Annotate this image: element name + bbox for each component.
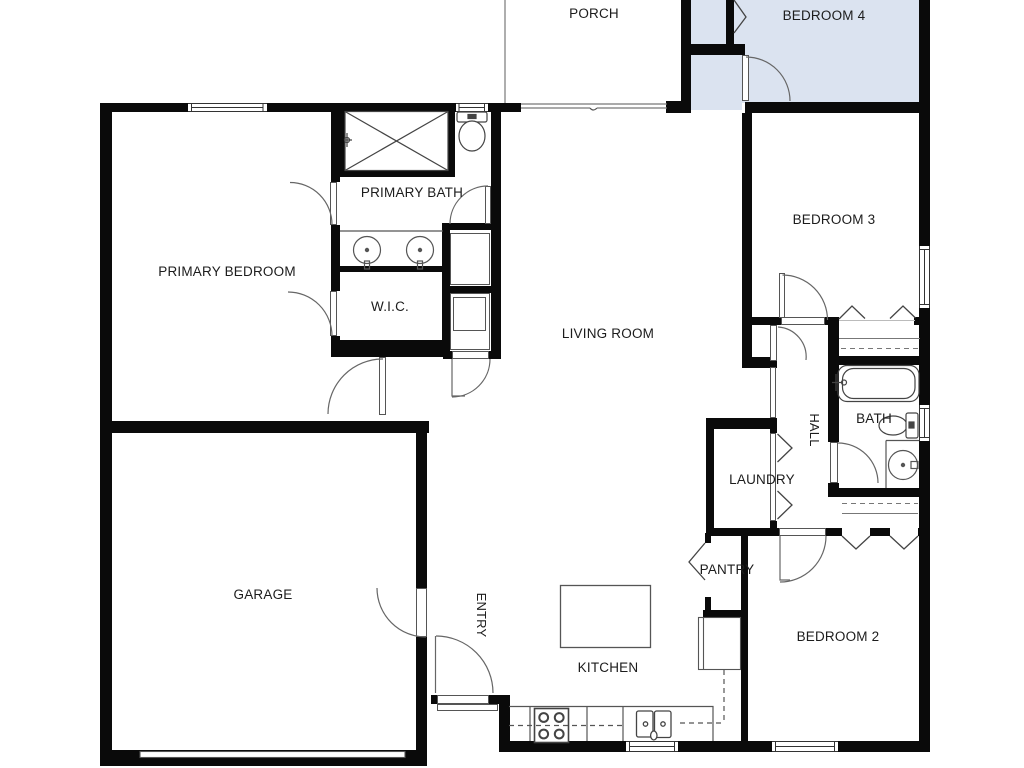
svg-text:PRIMARY BEDROOM: PRIMARY BEDROOM	[158, 264, 296, 279]
svg-text:HALL: HALL	[807, 413, 822, 446]
svg-text:PRIMARY BATH: PRIMARY BATH	[361, 185, 463, 200]
svg-text:KITCHEN: KITCHEN	[578, 660, 639, 675]
svg-text:ENTRY: ENTRY	[474, 593, 489, 638]
svg-text:PANTRY: PANTRY	[700, 562, 755, 577]
svg-text:BEDROOM 3: BEDROOM 3	[793, 212, 876, 227]
svg-text:GARAGE: GARAGE	[234, 587, 293, 602]
svg-text:W.I.C.: W.I.C.	[371, 299, 409, 314]
svg-text:BEDROOM 2: BEDROOM 2	[797, 629, 880, 644]
svg-text:PORCH: PORCH	[569, 6, 619, 21]
svg-text:LIVING ROOM: LIVING ROOM	[562, 326, 654, 341]
svg-text:LAUNDRY: LAUNDRY	[729, 472, 795, 487]
svg-text:BATH: BATH	[856, 411, 892, 426]
svg-text:BEDROOM 4: BEDROOM 4	[783, 8, 866, 23]
